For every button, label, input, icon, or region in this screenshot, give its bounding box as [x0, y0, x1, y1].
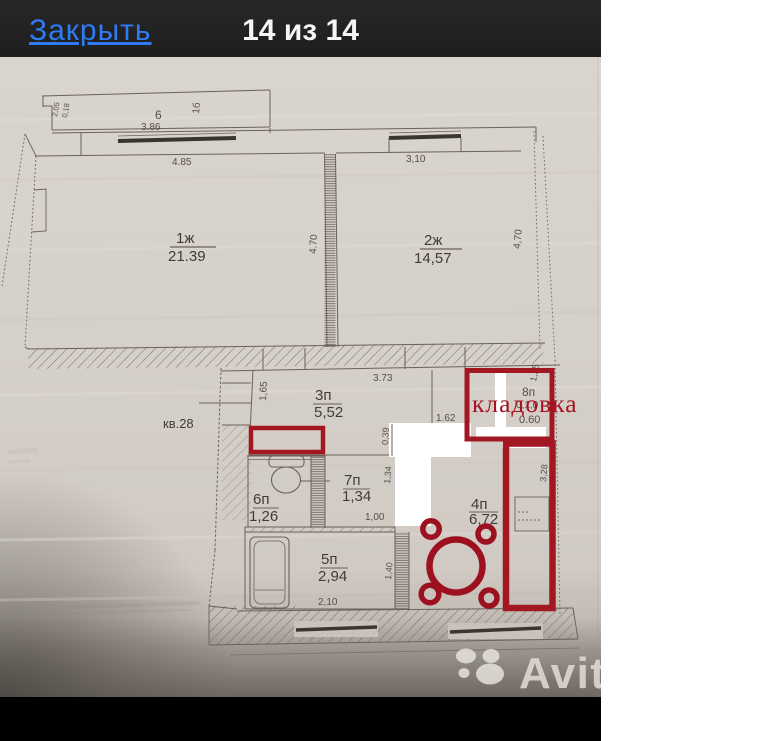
svg-text:1,26: 1,26	[249, 508, 278, 525]
svg-text:14,57: 14,57	[414, 250, 452, 267]
svg-text:3,28: 3,28	[538, 464, 549, 482]
svg-text:0,39: 0,39	[380, 427, 391, 445]
svg-text:6п: 6п	[253, 491, 269, 508]
svg-text:3.73: 3.73	[373, 373, 393, 384]
svg-text:1ж: 1ж	[176, 230, 194, 247]
svg-text:2ж: 2ж	[424, 232, 442, 249]
svg-text:1,65: 1,65	[258, 381, 270, 401]
svg-text:1.62: 1.62	[436, 413, 456, 424]
svg-text:21.39: 21.39	[168, 248, 206, 265]
svg-text:6: 6	[155, 108, 162, 122]
svg-text:1,34: 1,34	[342, 488, 371, 505]
svg-text:1б: 1б	[190, 102, 203, 115]
svg-text:4,70: 4,70	[512, 228, 525, 249]
svg-text:1,40: 1,40	[383, 562, 394, 580]
svg-text:1,34: 1,34	[382, 466, 393, 484]
svg-text:1,00: 1,00	[365, 512, 385, 523]
svg-text:5,52: 5,52	[314, 404, 343, 421]
svg-text:3п: 3п	[315, 387, 331, 404]
svg-text:кладовка: кладовка	[472, 389, 578, 418]
svg-text:2,10: 2,10	[318, 597, 338, 608]
svg-text:2,94: 2,94	[318, 568, 347, 585]
svg-text:Avit: Avit	[519, 649, 601, 697]
svg-text:7п: 7п	[344, 472, 360, 489]
svg-text:3,10: 3,10	[406, 154, 426, 165]
svg-text:4.70: 4.70	[308, 234, 320, 254]
svg-text:кв.28: кв.28	[163, 416, 194, 431]
svg-text:5п: 5п	[321, 551, 337, 568]
svg-text:4.85: 4.85	[172, 157, 192, 168]
